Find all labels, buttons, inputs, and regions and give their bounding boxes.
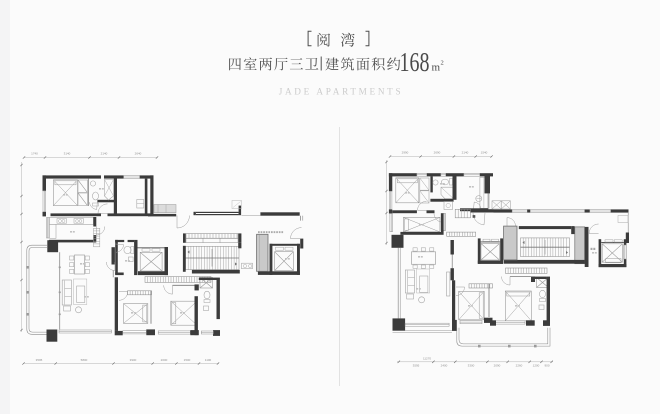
svg-text:1740: 1740: [31, 152, 38, 156]
svg-text:m: m: [432, 62, 441, 74]
svg-text:2640: 2640: [135, 152, 142, 156]
svg-text:2260: 2260: [516, 364, 523, 368]
svg-text:3900: 3900: [130, 358, 137, 362]
svg-text:2990: 2990: [402, 151, 409, 155]
svg-text:2140: 2140: [462, 151, 469, 155]
svg-text:5800: 5800: [81, 358, 88, 362]
svg-text:900: 900: [544, 364, 549, 368]
svg-text:2090: 2090: [494, 364, 501, 368]
svg-text:2000: 2000: [161, 358, 168, 362]
svg-text:JADE APARTMENTS: JADE APARTMENTS: [279, 87, 404, 97]
svg-text:2400: 2400: [441, 364, 448, 368]
svg-text:2690: 2690: [434, 151, 441, 155]
svg-text:2140: 2140: [101, 152, 108, 156]
svg-text:2: 2: [441, 60, 444, 67]
svg-text:1200: 1200: [533, 364, 540, 368]
svg-text:1100: 1100: [205, 358, 212, 362]
svg-text:11270: 11270: [423, 356, 431, 360]
svg-text:3595: 3595: [413, 364, 420, 368]
svg-text:3140: 3140: [64, 152, 71, 156]
svg-text:3300: 3300: [468, 364, 475, 368]
svg-text:3595: 3595: [36, 358, 43, 362]
svg-text:1540: 1540: [481, 151, 488, 155]
svg-text:168: 168: [400, 47, 430, 77]
svg-text:1500: 1500: [184, 358, 191, 362]
